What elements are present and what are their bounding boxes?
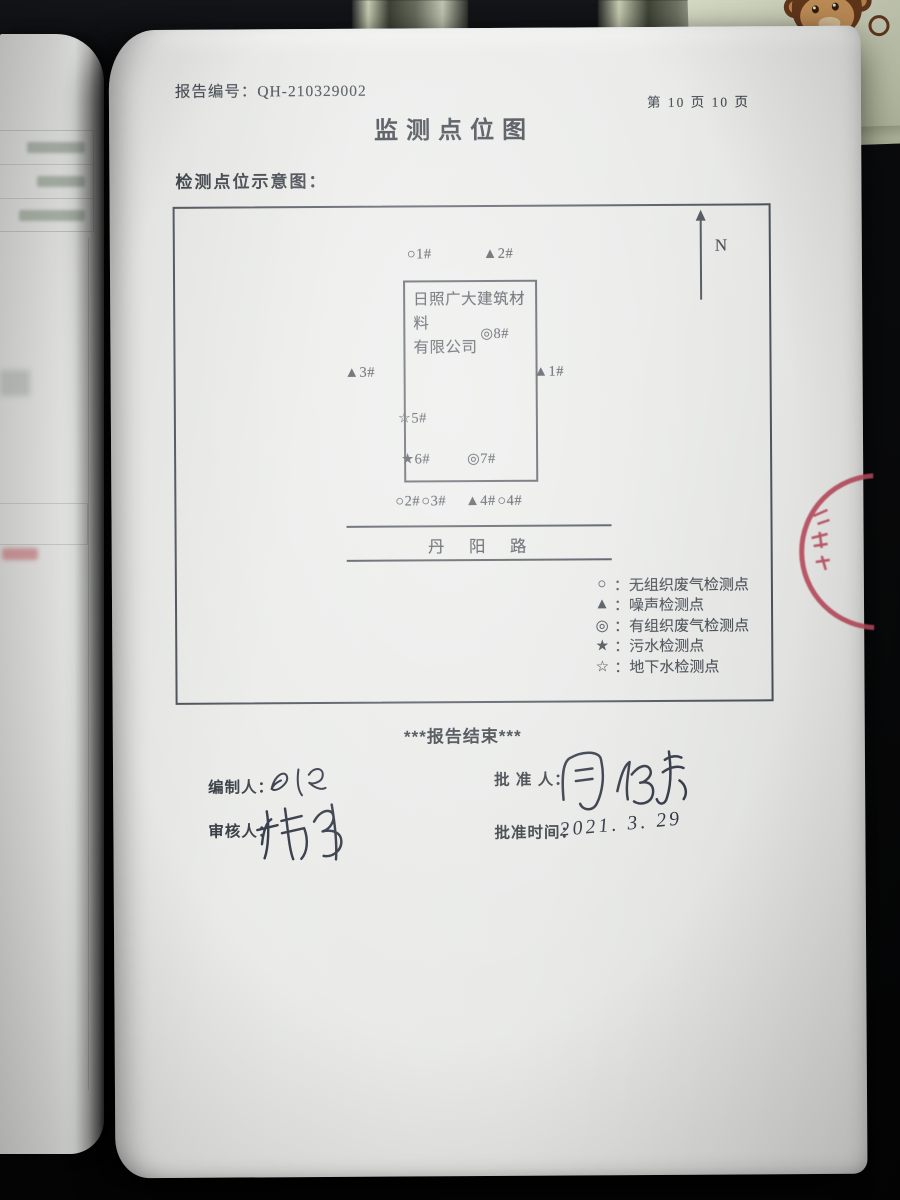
- legend-label: ：地下水检测点: [614, 655, 719, 677]
- point-circle-2: ○2#: [395, 493, 420, 510]
- point-triangle-1: ▲1#: [534, 364, 564, 381]
- page-title: 监测点位图: [204, 109, 704, 147]
- road-line-bottom: [347, 558, 612, 562]
- report-number-value: QH-210329002: [257, 83, 366, 101]
- road-line-top: [347, 524, 612, 528]
- legend-label: ：噪声检测点: [614, 594, 704, 616]
- point-triangle-4: ▲4#: [465, 493, 495, 510]
- red-stamp-arc: [767, 472, 874, 645]
- stacked-pages: [0, 34, 104, 1154]
- point-double-circle-7: ◎7#: [467, 451, 496, 468]
- legend: ○：无组织废气检测点 ▲：噪声检测点 ◎：有组织废气检测点 ★：污水检测点 ☆：…: [590, 573, 771, 677]
- legend-item: ◎：有组织废气检测点: [590, 614, 770, 636]
- point-triangle-2: ▲2#: [483, 246, 513, 263]
- north-label: N: [715, 236, 727, 256]
- legend-symbol: ◎: [590, 616, 614, 635]
- legend-symbol: ○: [590, 576, 614, 593]
- ink-smudge: [0, 370, 30, 396]
- legend-label: ：有组织废气检测点: [614, 614, 749, 636]
- legend-label: ：无组织废气检测点: [614, 573, 749, 595]
- legend-symbol: ☆: [590, 657, 614, 676]
- point-circle-4: ○4#: [497, 493, 522, 510]
- point-triangle-3: ▲3#: [345, 365, 375, 382]
- red-smudge: [2, 548, 38, 560]
- page-edge-table: [0, 130, 94, 232]
- legend-item: ▲：噪声检测点: [590, 594, 770, 616]
- page-edge-box: [0, 503, 88, 545]
- road-name: 丹 阳 路: [347, 532, 612, 558]
- point-star-6: ★6#: [401, 451, 430, 468]
- legend-item: ○：无组织废气检测点: [590, 573, 770, 595]
- diagram-frame: N ○1# ▲2# 日照广大建筑材料 有限公司 ◎8# ▲3# ▲1# ☆5# …: [173, 203, 774, 705]
- point-circle-1: ○1#: [407, 246, 432, 263]
- company-name-line2: 有限公司: [413, 336, 531, 361]
- report-number: 报告编号：QH-210329002: [175, 79, 367, 102]
- report-number-label: 报告编号：: [175, 83, 258, 101]
- north-arrow-icon: [700, 220, 702, 300]
- legend-item: ★：污水检测点: [590, 635, 770, 657]
- photo-background: 刀刁 报告编号：QH-210329002 第 10 页 10 页 监测点位图 检…: [0, 0, 900, 1200]
- point-double-circle-8: ◎8#: [480, 326, 509, 343]
- point-circle-3: ○3#: [421, 493, 446, 510]
- page-edge-line: [88, 238, 89, 1090]
- point-star-outline-5: ☆5#: [398, 410, 427, 427]
- reviewed-by-signature: [250, 795, 365, 872]
- section-heading: 检测点位示意图：: [175, 167, 327, 193]
- approved-by-signature: [553, 739, 698, 818]
- report-page: 报告编号：QH-210329002 第 10 页 10 页 监测点位图 检测点位…: [109, 26, 868, 1179]
- legend-symbol: ▲: [590, 596, 614, 613]
- legend-item: ☆：地下水检测点: [590, 655, 770, 677]
- legend-symbol: ★: [590, 636, 614, 655]
- legend-label: ：污水检测点: [614, 635, 704, 657]
- company-name: 日照广大建筑材料 有限公司: [413, 288, 531, 361]
- company-name-line1: 日照广大建筑材料: [413, 288, 531, 337]
